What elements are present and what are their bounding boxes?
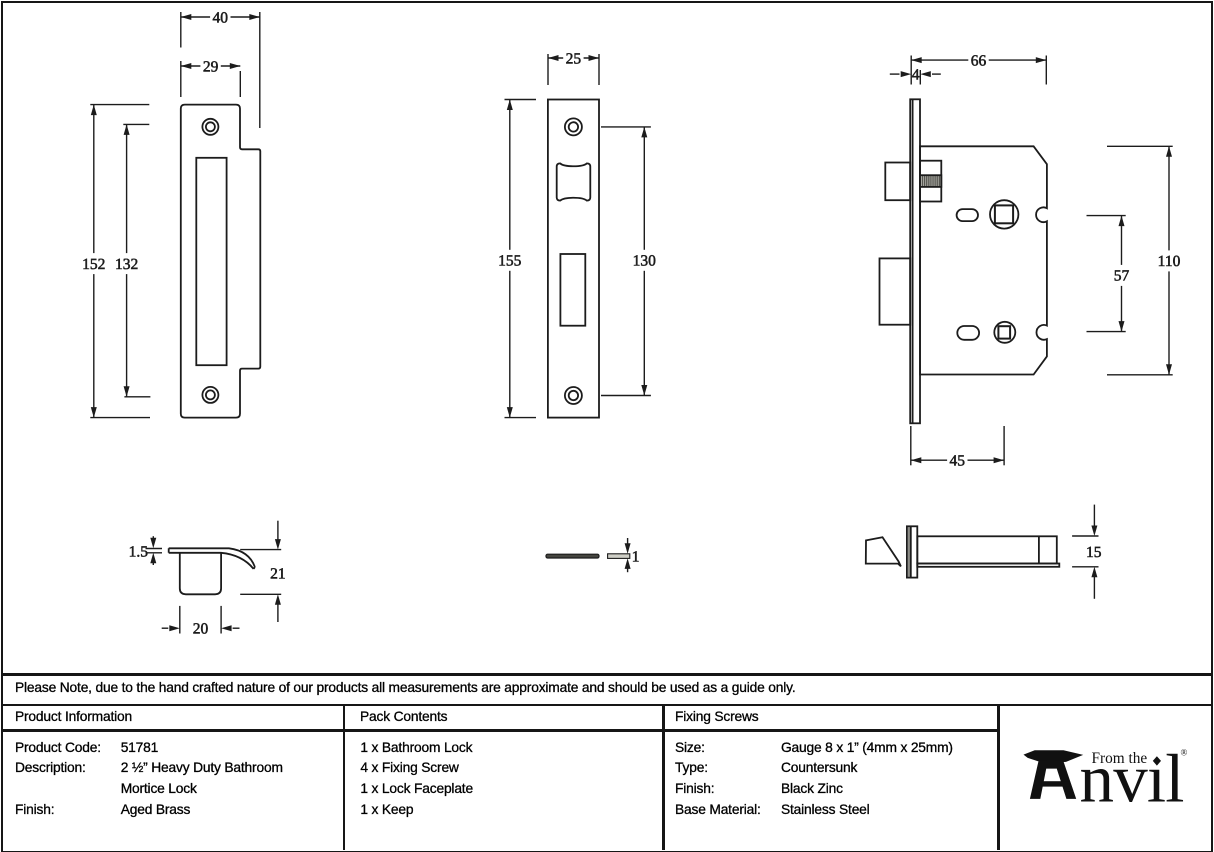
svg-text:®: ® <box>1181 748 1188 758</box>
svg-text:From the: From the <box>1092 750 1148 767</box>
